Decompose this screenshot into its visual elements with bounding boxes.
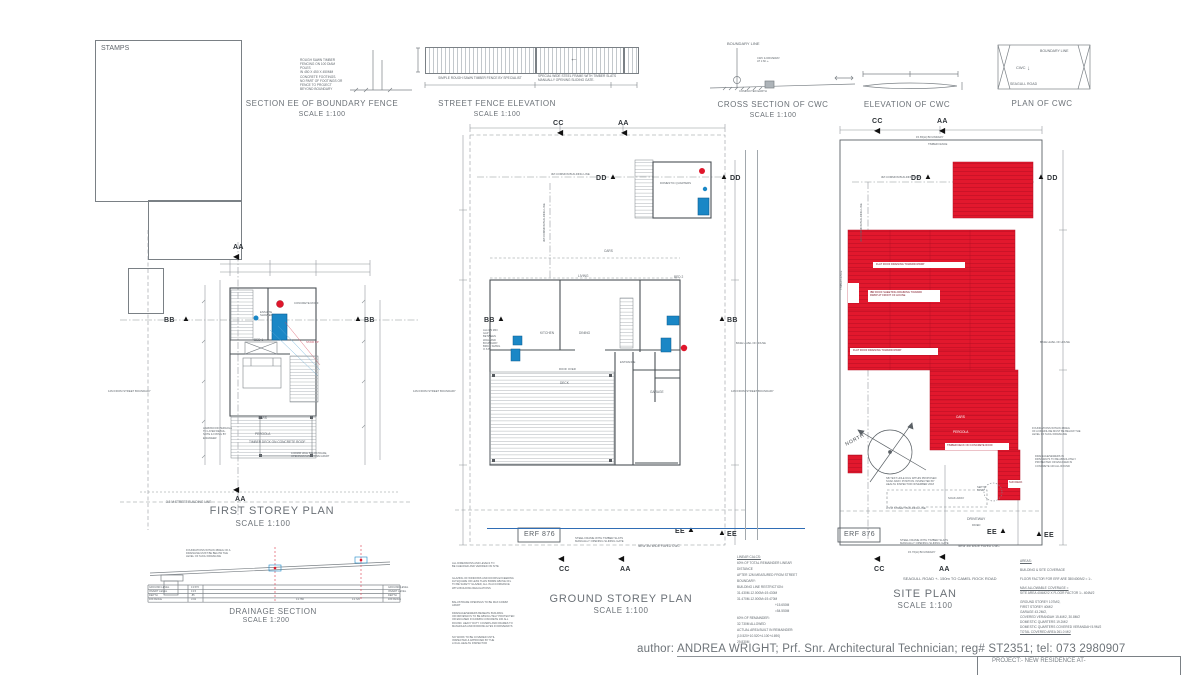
ground-storey-drawing [455,120,745,620]
cwc-elev-drawing [860,60,965,95]
section-marker-triangle-icon: ▲ [609,173,617,181]
drainage-row-label: DISTANCE [388,598,401,601]
furniture [243,342,281,388]
cwc-plan-road: SEAGULL ROAD [1010,82,1037,86]
section-marker-triangle-icon: ▲ [497,315,505,323]
sp-base-note: BASE LEVEL OF HOUSE [1040,341,1070,344]
section-marker-triangle-icon: ▲ [999,527,1007,535]
linework [710,48,855,90]
project-line: PROJECT:- NEW RESIDENCE AT- [992,658,1086,665]
general-note: ALL DIMENSIONS AND LEVELS TO BE CHECKED … [452,562,499,568]
site-plan-drawing [830,120,1080,620]
sp-boundary-note: 12M FROM STREET BOUNDARY [731,390,774,393]
section-marker-triangle-icon: ▲ [182,315,190,323]
section-marker-triangle-icon: ▲ [354,315,362,323]
sp-erf-label: ERF 876 [844,531,875,539]
marker-bb-left-fs: BB [164,317,175,325]
gs-gate-note: STEEL FRAME WITH TIMBER SLATS MANUALLY O… [575,537,624,543]
marker-aa-bottom-gs: AA [620,566,631,574]
cwc-plan-boundary: BOUNDARY LINE [1040,49,1068,53]
first-storey-scale: SCALE 1:100 [235,519,290,528]
calcs-line: BOUNDARY: [737,580,756,584]
sp-timber-fence-top: TIMBER FENCE [928,143,947,146]
gs-kitchen-label: KITCHEN [540,332,554,336]
areas-line: TOTAL COVERED AREA 261.0 M/2 [1020,631,1071,635]
geyser-fixture [277,301,284,308]
section-marker-triangle-icon: ▲ [718,529,726,537]
marker-aa-top-fs: AA [233,244,244,252]
drainage-distance: 13.780 [296,598,304,601]
gs-entrance-label: ENTRANCE [620,361,635,364]
general-note: NO WORK TO BE COVERED UNTIL INSPECTED & … [452,636,495,646]
fs-cars-label: CARS [258,417,267,421]
stamps-label: STAMPS [101,45,129,53]
drainage-row-label: GROUND LEVEL [388,586,408,589]
roof-notch [848,283,859,303]
sp-road-note: SEAGULL ROAD +- 150m TO CAMEL ROCK ROAD [903,577,996,582]
sp-boundary-bottom: 15.76(H) BOUNDARY [908,551,935,554]
linework [120,230,420,530]
marker-aa-bottom-fs: AA [235,496,246,504]
areas-line: FLOOR FACTOR FOR ERF ARE 350/400/M2 = 1:… [1020,578,1092,582]
drain-lines [275,545,361,603]
section-marker-triangle-icon: ▲ [720,173,728,181]
first-storey-drawing [120,230,420,530]
fence-dim [425,82,637,90]
stair-hatch [231,290,253,340]
sp-cwc-note: NEW 3M WIDE PAVED CWC [958,545,1000,549]
dq-geyser-fixture [699,168,705,174]
calcs-line: 60% OF TOTAL REMAINDER LINEAR [737,562,792,566]
fence-bar-end [624,47,639,74]
marker-bb-right-gs: BB [727,317,738,325]
sp-building-line-label-v: 3M COMMON BUILDING LINE [860,203,863,242]
drainage-value: 3.02 [191,598,196,601]
section-ee-drawing [330,42,425,100]
sp-boundary-top: 15.65(H) BOUNDARY [916,136,943,139]
marker-aa-top-sp: AA [937,118,948,126]
site-plan-title: SITE PLAN [893,588,956,601]
sp-roof2-label: IBR ROOF SHEETING DRAINING TOWARD RWDP A… [870,291,922,297]
areas-line: SITE AREA 404M2/2 X FLOOR FACTOR 1:- 404… [1020,592,1094,596]
basin-fixture [254,316,259,321]
section-marker-triangle-icon: ◀ [233,253,239,261]
drainage-row-label: DISTANCE [149,598,162,601]
sp-found-note: FOUNDATIONS WITHIN 45DEG OF A DRAINLINE … [1032,427,1080,437]
gs-roof-over-label: ROOF OVER [559,368,576,371]
deck-hatch [490,372,614,464]
ground-storey-scale: SCALE 1:100 [593,606,648,615]
general-note: GLAZING OF WINDOWS AND DOORS EXCEEDING 1… [452,577,514,590]
gs-allow-note: ALLOW MIN GAP BETWEEN WALL AND BOUNDARY.… [483,329,501,352]
calcs-line: AFTER 12M MEASURED FROM STREET [737,574,797,578]
section-marker-triangle-icon: ◀ [558,555,564,563]
street-fence-scale: SCALE 1:100 [474,111,521,119]
marker-cc-bottom-sp: CC [874,566,885,574]
dimension-line [757,150,758,540]
gs-cars-label: CARS [604,250,613,254]
marker-bb-right-fs: BB [364,317,375,325]
section-marker-triangle-icon: ◀ [939,553,945,561]
sp-roof1-label: FLAT ROOF DRAINING TOWARD RWDP [876,263,924,266]
domestic-quarters-roof [953,162,1033,218]
calcs-line: 32.730M ALLOWED [737,623,766,627]
section-marker-triangle-icon: ▲ [1035,530,1043,538]
gs-domestic-label: DOMESTIC QUARTERS [660,182,691,185]
marker-bb-left-gs: BB [484,317,495,325]
fs-boundary-note: 12M FROM STREET BOUNDARY [108,390,151,393]
marker-cc-top-gs: CC [553,120,564,128]
gs-bed2-label: BED 2 [674,276,683,280]
red-roof-areas [848,162,1033,500]
cwc-earth-label: COMPACTED EARTH [739,90,767,93]
marker-ee-right-gs: EE [727,531,737,539]
calcs-line: BUILDING LINE RESTRICTION: [737,586,783,590]
gs-building-line-label: 3M COMMON BUILDING LINE [551,173,590,176]
section-marker-triangle-icon: ▲ [924,173,932,181]
domestic-quarters [635,160,711,218]
sp-deck-label: TIMBER DECK ON CONCRETE ROOF [947,444,993,447]
gate-bar [536,47,624,74]
drainage-value: 13.5 [191,590,196,593]
sp-timber-fence-left: TIMBER FENCE [840,271,843,290]
author-line: author: ANDREA WRIGHT; Prf. Snr. Archite… [637,643,1126,656]
gs-base-note: BASE LEVEL OF HOUSE [736,342,766,345]
section-marker-triangle-icon: ◀ [557,129,563,137]
fs-deck-label: TIMBER DECK ON CONCRETE ROOF [249,441,305,445]
marker-ee-right-sp: EE [1044,532,1054,540]
stair-hatch [620,298,633,348]
cwc-plan-title: PLAN OF CWC [1011,99,1072,108]
marker-aa-top-gs: AA [618,120,629,128]
drainage-title: DRAINAGE SECTION [229,607,317,616]
gs-living-label: LIVING [578,275,588,279]
section-marker-triangle-icon: ◀ [939,127,945,135]
drainage-row-label: INVERT LEVEL [149,590,167,593]
sp-septic-label: SEPTIC TANK [977,486,986,492]
fs-street-line-label: 3.5 M STREET BUILDING LINE [166,501,211,505]
gs-garage-label: GARAGE [650,391,664,395]
calcs-line: ACTUAL AREA BUILT IN REMAINDER: [737,629,793,633]
street-fence-title: STREET FENCE ELEVATION [438,99,556,108]
section-marker-triangle-icon: ▲ [718,315,726,323]
gs-cwc-note: NEW 3M WIDE PAVED CWC [638,545,680,549]
section-marker-triangle-icon: ◀ [621,129,627,137]
sp-drain-note: DRAINAGE/SEWERS IN DRIVEWAYS TO BE ABSOL… [1035,455,1076,468]
gs-erf-label: ERF 876 [524,531,555,539]
calcs-line: 31.470M-12.000M=19.470M [737,598,777,602]
dq-basin-fixture [703,187,707,191]
marker-aa-bottom-sp: AA [939,566,950,574]
calcs-line: LINEAR CALCS: [737,556,761,560]
stoep-roof [848,455,862,473]
author-label: author: [637,643,674,655]
cwc-cross-title: CROSS SECTION OF CWC [718,100,829,109]
drainage-row-label: DEPTH [388,594,397,597]
calcs-line: +15.650M [775,604,789,608]
fs-balustrade-note: 1000MM HIGH BALUSTRADE, OPENINGS MAX 100… [291,452,329,458]
calcs-line: 60% OF REMAINDER: [737,617,770,621]
areas-line: AREAS: [1020,560,1032,564]
marker-ee-left-sp: EE [987,529,997,537]
gs-dining-label: DINING [579,332,590,336]
sp-paved-label: PAVED [972,524,980,527]
garage-deck-roof [930,370,1018,450]
section-marker-triangle-icon: ◀ [233,486,239,494]
section-marker-triangle-icon: ◀ [874,127,880,135]
drainage-value: .85 [191,594,195,597]
drainage-value: 13.570 [191,586,199,589]
site-plan-scale: SCALE 1:100 [897,601,952,610]
author-value: ANDREA WRIGHT; Prf. Snr. Architectural T… [677,643,1126,657]
marker-ee-left-gs: EE [675,528,685,536]
sp-driveway-label: DRIVEWAY [967,517,985,521]
soak-away [887,490,987,507]
marker-cc-top-sp: CC [872,118,883,126]
cwc-cross-scale: SCALE 1:100 [750,112,797,120]
sp-roof3-label: FLAT ROOF DRAINING TOWARD RWDP [853,349,901,352]
section-marker-triangle-icon: ◀ [618,555,624,563]
cwc-plan-cwc: CWC [1016,66,1026,71]
calcs-line: DISTANCE [737,568,753,572]
marker-dd-right-sp: DD [1047,175,1058,183]
fs-ensuite-label: ENSUITE SHOWER [260,311,273,317]
gs-boundary-note: 12M FROM STREET BOUNDARY [413,390,456,393]
section-ee-scale: SCALE 1:100 [299,111,346,119]
section-ee-title: SECTION EE OF BOUNDARY FENCE [246,99,398,108]
drainage-distance: 13.720 [352,598,360,601]
gs-deck-label: DECK [560,382,569,386]
fs-pergola-label: PERGOLA [255,433,270,437]
fence-note-left: SIMPLE ROUGH SAWN TIMBER FENCE BY SPECIA… [438,76,522,80]
sp-test-note: NB TEST HOLE DUG WITHIN PROPOSED SOAK AW… [886,477,937,487]
dimension-line [745,150,746,540]
shower-fixture [272,314,287,340]
sp-sun-deck-label: SUN DECK [1009,481,1022,484]
drawing-sheet: STAMPS ROUGH SAWN TIMBER FENCING ON 100 … [0,0,1200,675]
fence-bar [425,47,536,74]
section-marker-triangle-icon: ◀ [874,555,880,563]
sp-pergola-label: PERGOLA [953,431,968,435]
sp-building-line-label: 3M COMMON BUILDING LINE [881,176,920,179]
ground-storey-title: GROUND STOREY PLAN [550,593,693,606]
fixtures [511,316,687,361]
fs-pergola-note: HARDWOOD PERGOLA TO LATER DETAIL. NOTE &… [203,427,232,440]
calcs-line: (10.520+10.520+4.100+4.690) [737,635,780,639]
sp-cars-label: CARS [956,416,965,420]
cwc-down-arrow-icon: ↓ [1027,66,1030,73]
cwc-cross-drawing [705,40,870,100]
deck-stair-hatch [290,356,318,402]
fs-stair-label: STAIR UP [306,341,319,344]
drainage-note: FOUNDATIONS WITHIN 45DEG OF A DRAINLINE … [186,549,230,559]
sp-gate-note: STEEL FRAME WITH TIMBER SLATS MANUALLY O… [900,539,949,545]
drainage-row-label: INVERT LEVEL [388,590,406,593]
fs-bed1-label: BED 1 [254,339,263,343]
cwc-elev-title: ELEVATION OF CWC [864,100,950,109]
section-marker-triangle-icon: ▲ [1037,173,1045,181]
linework [350,48,420,92]
general-note: BALUSTRADE OPENINGS TO BE MAX 100MM APAR… [452,601,508,607]
calcs-line: 31.430M-12.000M=19.430M [737,592,777,596]
marker-cc-bottom-gs: CC [559,566,570,574]
calcs-line: =54.550M [775,610,789,614]
fs-concrete-roof-label: CONCRETE ROOF [294,302,319,305]
gate-arrow-icon: ← [570,54,578,63]
drainage-row-label: GROUND LEVEL [149,586,169,589]
stamps-panel [95,40,242,202]
marker-dd-left-gs: DD [596,175,607,183]
general-note: DRAINAGE/SEWERS BENEATH BUILDING OR DRIV… [452,612,514,628]
areas-line: BUILDING & SITE COVERAGE [1020,569,1065,573]
sp-soak-label: SOAK AWAY [948,497,964,500]
first-storey-title: FIRST STOREY PLAN [210,505,335,518]
drainage-scale: SCALE 1:200 [243,617,290,625]
sun-deck-roof [998,450,1020,500]
drainage-row-label: DEPTH [149,594,158,597]
dq-shower-fixture [698,198,709,215]
gs-building-line-label-v: 3M COMMON BUILDING LINE [543,203,546,242]
linework [863,71,962,90]
marker-dd-right-gs: DD [730,175,741,183]
sp-street-line-label: 3.5 M STREET BUILDING LINE [886,507,926,510]
